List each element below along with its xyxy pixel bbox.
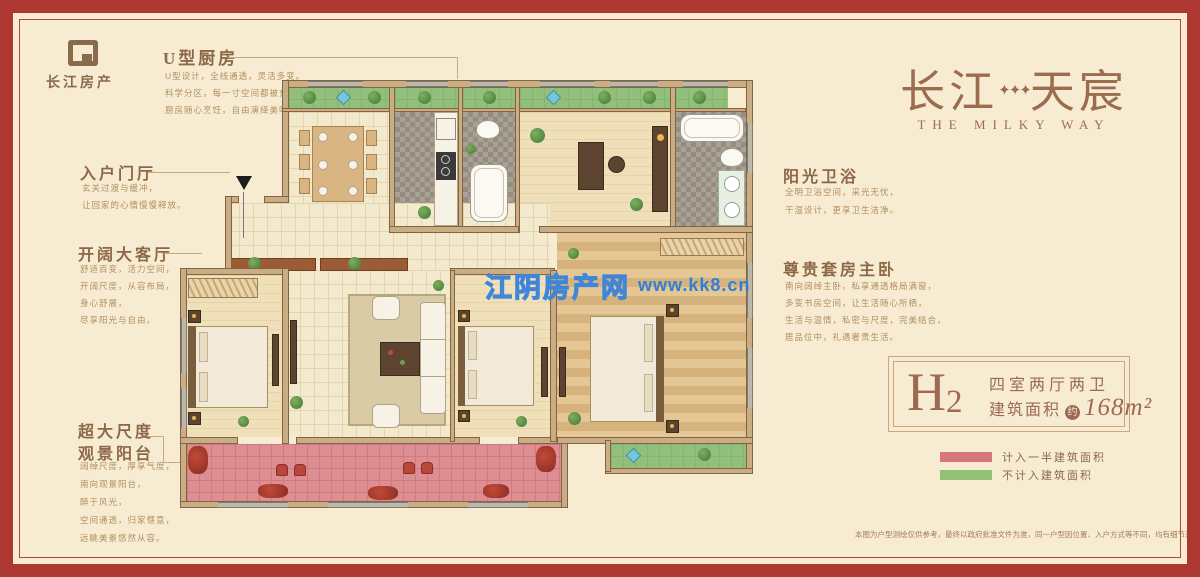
anno-master-lines: 南向阔绰主卧，私享通透格局满窗， 多变书房空间，让生活随心所栖， 生活与温情，私… xyxy=(785,280,947,343)
window xyxy=(218,502,288,508)
legend-swatch-pink xyxy=(940,452,992,462)
anno-bath-lines: 全明卫浴空间，采光无忧， 干湿设计，更享卫生洁净。 xyxy=(785,186,899,216)
coffee-table xyxy=(380,342,420,376)
plant-icon xyxy=(466,144,476,154)
balcony-chair xyxy=(294,464,306,476)
place-setting xyxy=(348,132,358,142)
window xyxy=(683,81,728,87)
poster-canvas: 长江房产 长江✦✦✦天宸 THE MILKY WAY U型厨房 U型设计，全线通… xyxy=(0,0,1200,577)
wall xyxy=(389,87,395,233)
dresser xyxy=(272,334,279,386)
place-setting xyxy=(348,186,358,196)
unit-code: H 2 xyxy=(907,365,963,419)
plant-icon xyxy=(530,128,545,143)
sofa-cushion-line xyxy=(420,339,446,340)
wall xyxy=(225,196,232,274)
plant-icon xyxy=(568,248,579,259)
lamp xyxy=(462,314,466,318)
pillow xyxy=(468,370,477,399)
legend-label: 不计入建筑面积 xyxy=(1002,467,1093,483)
window xyxy=(470,81,508,87)
watermark-site-name: 江阴房产网 xyxy=(485,266,630,305)
plant-icon xyxy=(568,412,581,425)
window xyxy=(468,502,528,508)
window xyxy=(406,81,448,87)
wall xyxy=(539,226,753,233)
place-setting xyxy=(318,160,328,170)
plant-icon xyxy=(238,416,249,427)
bed-headboard xyxy=(458,326,465,406)
window xyxy=(308,81,363,87)
anno-kitchen-heading: U型厨房 xyxy=(163,44,238,69)
wall xyxy=(389,226,519,233)
title-cn-right: 天宸 xyxy=(1030,67,1128,117)
project-title-en: THE MILKY WAY xyxy=(876,117,1152,133)
window xyxy=(540,81,595,87)
lamp xyxy=(657,134,664,141)
project-title: 长江✦✦✦天宸 xyxy=(876,55,1152,120)
wall xyxy=(605,468,753,474)
place-setting xyxy=(348,160,358,170)
wall xyxy=(180,437,238,444)
wall xyxy=(458,87,463,233)
unit-card: H 2 四室两厅两卫 建筑面积 约 168m² xyxy=(888,356,1130,432)
bathtub xyxy=(680,114,744,142)
brand-name: 长江房产 xyxy=(46,72,114,92)
sofa xyxy=(420,302,446,414)
wall xyxy=(264,196,289,203)
anno-living-heading: 开阔大客厅 xyxy=(78,241,173,265)
plant-icon xyxy=(433,280,444,291)
dining-chair xyxy=(299,154,310,170)
plant-icon xyxy=(516,416,527,427)
leader-line xyxy=(228,57,458,58)
dining-chair xyxy=(299,178,310,194)
armchair xyxy=(372,296,400,320)
wall xyxy=(180,268,286,275)
plant-icon xyxy=(290,396,303,409)
star-cluster-icon: ✦✦✦ xyxy=(998,81,1030,99)
flower-cluster xyxy=(258,484,288,498)
tv-cabinet xyxy=(290,320,297,384)
plant-icon xyxy=(598,91,611,104)
anno-master-heading: 尊贵套房主卧 xyxy=(783,256,897,280)
approx-circle-icon: 约 xyxy=(1065,405,1080,420)
lamp xyxy=(670,424,674,428)
lamp xyxy=(670,308,674,312)
watermark: 江阴房产网 www.kk8.cn xyxy=(485,266,750,305)
study-chair xyxy=(608,156,625,173)
wall xyxy=(670,87,676,233)
table-decor xyxy=(400,360,405,365)
lamp xyxy=(192,314,196,318)
plant-icon xyxy=(630,198,643,211)
pillow xyxy=(644,324,653,362)
kitchen-sink xyxy=(436,118,456,140)
unit-layout: 四室两厅两卫 xyxy=(989,371,1109,395)
leader-line xyxy=(147,436,163,437)
stove-burner xyxy=(441,167,450,176)
balcony-chair xyxy=(403,462,415,474)
table-decor xyxy=(388,350,393,355)
anno-balcony-heading-1: 超大尺度 xyxy=(78,418,154,442)
anno-living-lines: 舒适百变，活力空间， 开阔尺度，从容布局， 身心舒展， 尽享阳光与自由。 xyxy=(80,263,175,326)
leader-line xyxy=(163,436,164,462)
window xyxy=(747,348,753,408)
balcony-chair xyxy=(421,462,433,474)
toilet xyxy=(476,120,500,139)
window xyxy=(747,123,753,173)
wall xyxy=(515,87,520,233)
dining-chair xyxy=(366,154,377,170)
wardrobe xyxy=(660,238,744,256)
armchair xyxy=(372,404,400,428)
wall xyxy=(282,80,289,203)
plant-icon xyxy=(303,91,316,104)
plant-icon xyxy=(418,206,431,219)
plant-icon xyxy=(698,448,711,461)
pillow xyxy=(644,374,653,412)
bathtub xyxy=(470,164,508,222)
wardrobe xyxy=(188,278,258,298)
unit-number: 2 xyxy=(946,386,963,419)
wall xyxy=(561,440,568,508)
plant-icon xyxy=(693,91,706,104)
tv-cabinet xyxy=(559,347,566,397)
legend-label: 计入一半建筑面积 xyxy=(1002,449,1106,465)
wall xyxy=(450,270,455,442)
dining-chair xyxy=(366,178,377,194)
window xyxy=(328,502,408,508)
planter-box xyxy=(320,258,408,271)
window xyxy=(181,388,187,428)
bed-headboard xyxy=(656,316,664,422)
plant-icon xyxy=(643,91,656,104)
pillow xyxy=(199,372,208,402)
anno-balcony-lines: 阔绰尺度，厚享气度， 南向观景阳台， 醉于风光， 空间通透，归家惬意， 远眺美景… xyxy=(80,460,175,544)
wash-basin xyxy=(724,176,740,192)
study-desk xyxy=(578,142,604,190)
bed-headboard xyxy=(188,326,196,408)
entry-arrow-stem xyxy=(243,192,244,238)
window xyxy=(610,81,658,87)
pillow xyxy=(199,332,208,362)
dining-chair xyxy=(366,130,377,146)
legend-row-half-area: 计入一半建筑面积 xyxy=(940,449,1106,465)
stove-burner xyxy=(441,155,450,164)
wall xyxy=(557,437,753,444)
window xyxy=(181,318,187,373)
flower-cluster xyxy=(188,446,208,474)
title-cn-left: 长江 xyxy=(900,67,998,117)
disclaimer-text: 本图为户型测绘仅供参考，最终以政府批准文件为准，同一户型因位置、入户方式等不同，… xyxy=(855,529,1200,540)
place-setting xyxy=(318,132,328,142)
plant-icon xyxy=(418,91,431,104)
anno-foyer-heading: 入户门厅 xyxy=(80,160,156,184)
plant-icon xyxy=(368,91,381,104)
flower-cluster xyxy=(536,446,556,472)
plant-icon xyxy=(348,257,361,270)
anno-foyer-lines: 玄关过渡与缓冲， 让回家的心情慢慢释放。 xyxy=(82,182,187,211)
unit-letter: H xyxy=(907,365,946,419)
wash-basin xyxy=(724,202,740,218)
wall xyxy=(282,268,289,444)
area-value: 168m² xyxy=(1084,395,1152,420)
entry-arrow-icon xyxy=(236,176,252,190)
legend-swatch-green xyxy=(940,470,992,480)
anno-bath-heading: 阳光卫浴 xyxy=(783,163,859,187)
lamp xyxy=(192,416,196,420)
plant-icon xyxy=(483,91,496,104)
dining-chair xyxy=(299,130,310,146)
flower-cluster xyxy=(483,484,509,498)
brand-logo-icon xyxy=(68,40,98,66)
balcony-chair xyxy=(276,464,288,476)
sofa-cushion-line xyxy=(420,376,446,377)
area-label: 建筑面积 xyxy=(989,396,1061,420)
watermark-site-url[interactable]: www.kk8.cn xyxy=(638,275,750,296)
place-setting xyxy=(318,186,328,196)
lamp xyxy=(462,414,466,418)
wall xyxy=(282,108,746,112)
dresser xyxy=(541,347,548,397)
pillow xyxy=(468,331,477,360)
toilet xyxy=(720,148,744,167)
flower-cluster xyxy=(368,486,398,500)
wall xyxy=(605,440,611,472)
legend-row-excluded-area: 不计入建筑面积 xyxy=(940,467,1093,483)
unit-area: 建筑面积 约 168m² xyxy=(989,395,1152,420)
